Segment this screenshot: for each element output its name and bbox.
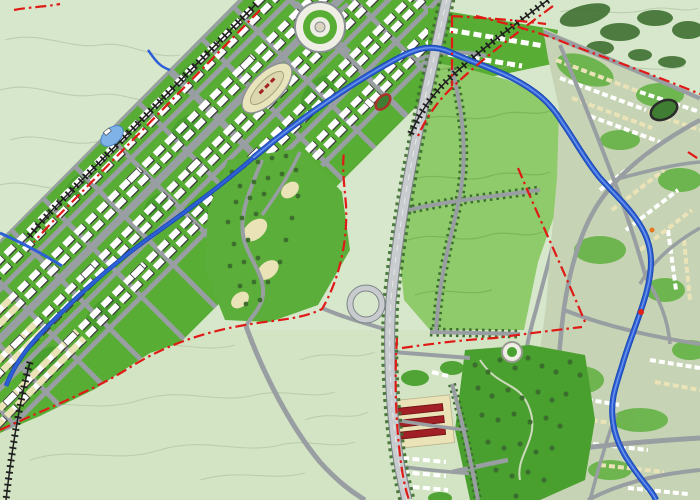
city-park-ground bbox=[455, 345, 595, 500]
city-park-south bbox=[455, 342, 595, 500]
red-marker bbox=[638, 309, 644, 315]
orange-marker bbox=[650, 228, 655, 233]
amphitheater-lawn bbox=[507, 347, 517, 357]
master-plan-map bbox=[0, 0, 700, 500]
plaza-monument bbox=[315, 22, 325, 32]
circular-plaza bbox=[295, 2, 350, 52]
map-canvas bbox=[0, 0, 700, 500]
